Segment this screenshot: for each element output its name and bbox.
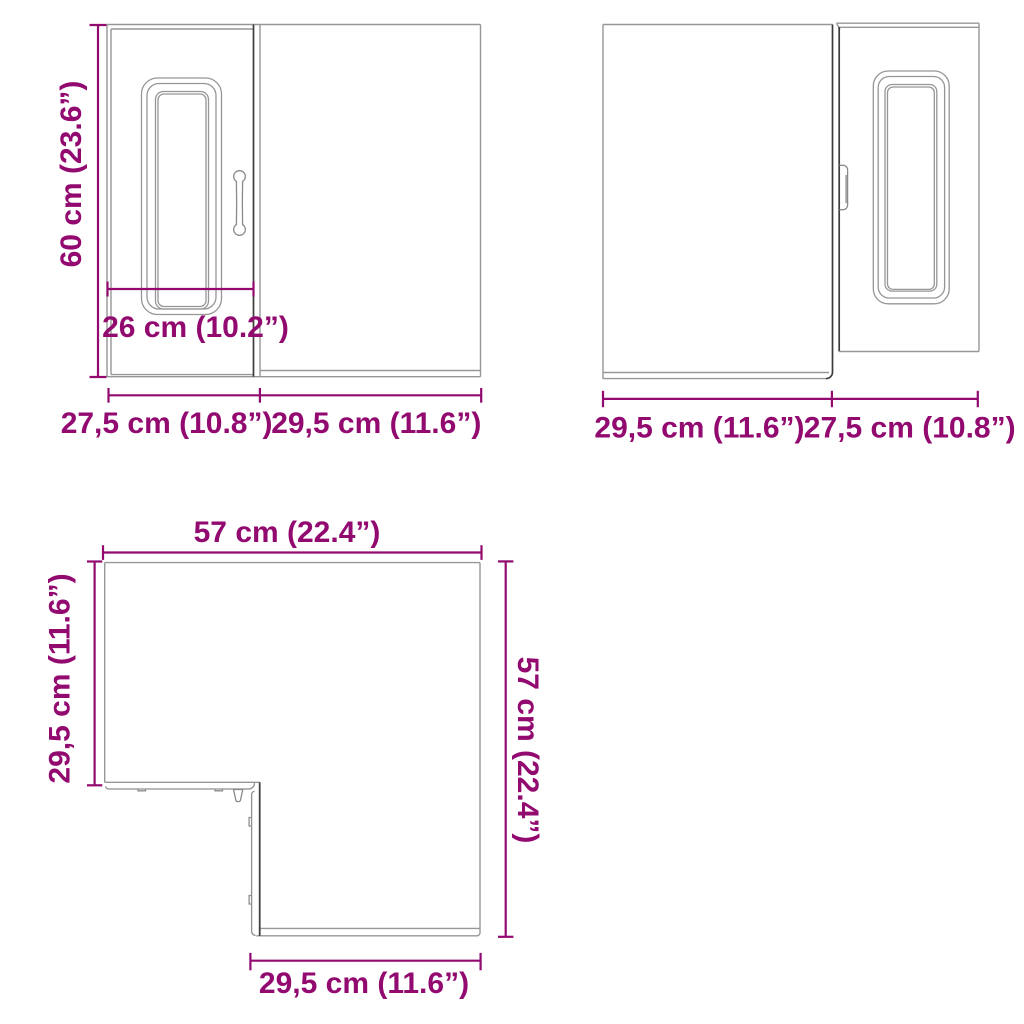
svg-text:29,5 cm (11.6”): 29,5 cm (11.6”): [44, 573, 77, 783]
svg-text:29,5 cm (11.6”): 29,5 cm (11.6”): [271, 407, 481, 440]
svg-text:26 cm (10.2”): 26 cm (10.2”): [102, 311, 289, 344]
svg-text:29,5 cm (11.6”): 29,5 cm (11.6”): [594, 412, 804, 445]
svg-text:57 cm (22.4”): 57 cm (22.4”): [511, 657, 544, 844]
svg-text:60 cm (23.6”): 60 cm (23.6”): [55, 81, 88, 268]
svg-text:27,5 cm (10.8”): 27,5 cm (10.8”): [61, 407, 273, 440]
svg-text:29,5 cm (11.6”): 29,5 cm (11.6”): [259, 967, 469, 1000]
svg-text:57 cm (22.4”): 57 cm (22.4”): [194, 516, 381, 549]
svg-text:27,5 cm (10.8”): 27,5 cm (10.8”): [804, 412, 1016, 445]
